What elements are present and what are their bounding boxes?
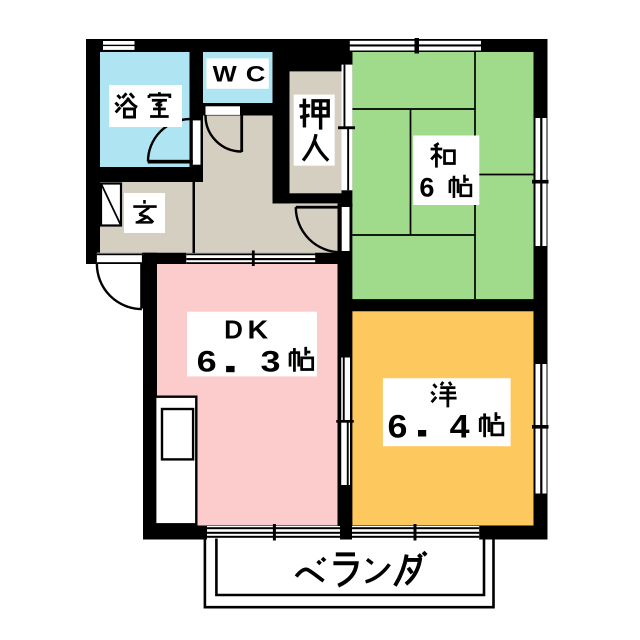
svg-text:3: 3 [260, 345, 280, 378]
svg-text:K: K [247, 315, 268, 344]
svg-text:D: D [224, 315, 243, 345]
svg-text:6: 6 [388, 409, 408, 445]
svg-text:C: C [246, 63, 266, 87]
svg-text:6: 6 [197, 345, 217, 378]
svg-text:6: 6 [419, 173, 434, 203]
svg-text:4: 4 [450, 409, 470, 445]
svg-text:W: W [213, 62, 238, 87]
